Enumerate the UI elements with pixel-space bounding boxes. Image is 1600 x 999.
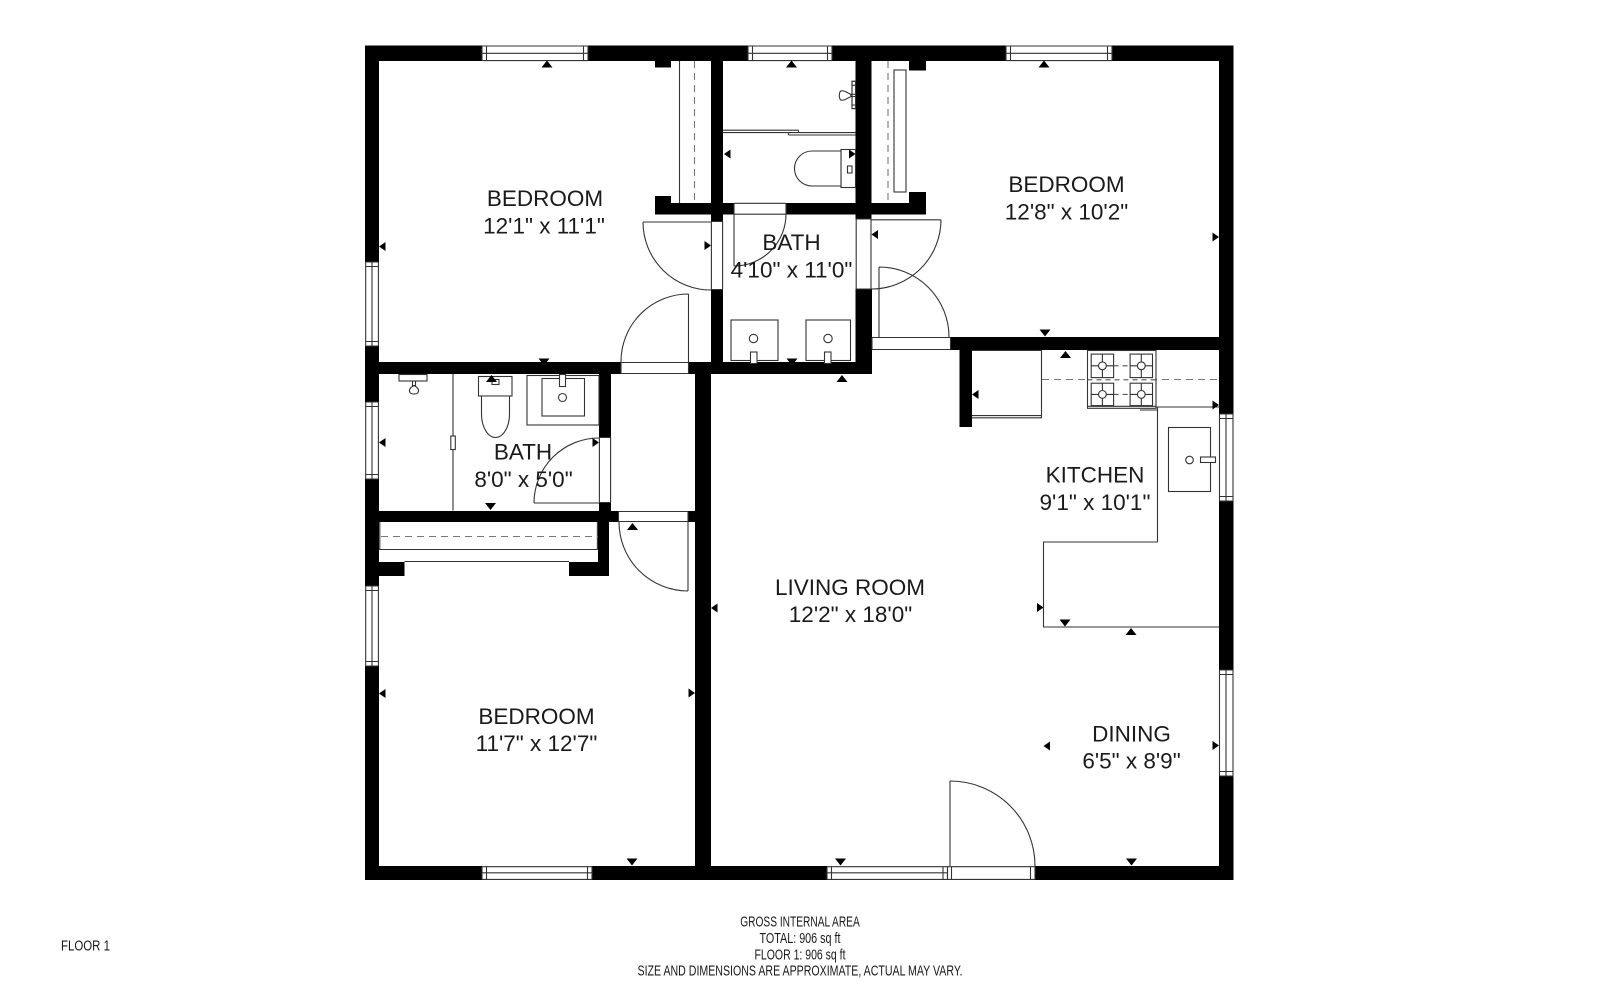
svg-text:4'10" x 11'0": 4'10" x 11'0" bbox=[731, 258, 853, 283]
svg-text:9'1" x 10'1": 9'1" x 10'1" bbox=[1040, 490, 1151, 515]
svg-text:LIVING ROOM: LIVING ROOM bbox=[775, 575, 925, 600]
svg-text:FLOOR 1: FLOOR 1 bbox=[61, 939, 110, 955]
svg-text:11'7" x 12'7": 11'7" x 12'7" bbox=[476, 731, 598, 756]
svg-text:8'0" x 5'0": 8'0" x 5'0" bbox=[474, 467, 572, 492]
svg-text:6'5" x 8'9": 6'5" x 8'9" bbox=[1082, 749, 1180, 774]
svg-text:BATH: BATH bbox=[494, 440, 552, 465]
svg-text:TOTAL: 906 sq ft: TOTAL: 906 sq ft bbox=[760, 931, 841, 947]
svg-text:12'1" x 11'1": 12'1" x 11'1" bbox=[483, 214, 605, 239]
svg-text:BEDROOM: BEDROOM bbox=[478, 704, 594, 729]
svg-text:BATH: BATH bbox=[762, 230, 820, 255]
svg-text:12'2" x 18'0": 12'2" x 18'0" bbox=[789, 602, 912, 627]
svg-text:12'8" x 10'2": 12'8" x 10'2" bbox=[1005, 200, 1128, 225]
svg-text:BEDROOM: BEDROOM bbox=[1008, 172, 1124, 197]
svg-text:KITCHEN: KITCHEN bbox=[1046, 463, 1145, 488]
svg-text:DINING: DINING bbox=[1092, 722, 1171, 747]
svg-text:BEDROOM: BEDROOM bbox=[487, 186, 603, 211]
svg-text:FLOOR 1: 906 sq ft: FLOOR 1: 906 sq ft bbox=[755, 947, 846, 963]
svg-text:SIZE AND DIMENSIONS ARE APPROX: SIZE AND DIMENSIONS ARE APPROXIMATE, ACT… bbox=[638, 963, 963, 979]
svg-text:GROSS INTERNAL AREA: GROSS INTERNAL AREA bbox=[740, 914, 860, 930]
